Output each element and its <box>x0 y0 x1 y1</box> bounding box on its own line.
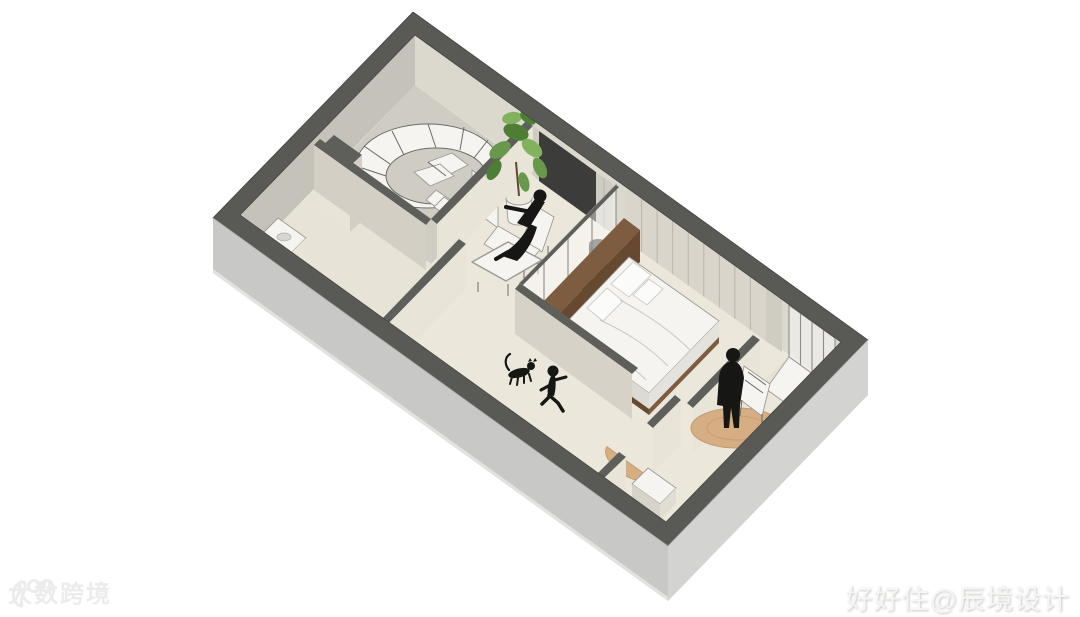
watermark-right-text: 好好住@辰境设计 <box>846 585 1070 615</box>
floorplan-rendering <box>0 0 1080 617</box>
screenshot-canvas: 大数跨境 好好住@辰境设计 <box>0 0 1080 617</box>
watermark-bottom-right: 好好住@辰境设计 <box>846 578 1070 617</box>
dashu-logo-icon <box>8 574 54 612</box>
watermark-bottom-left: 大数跨境 <box>8 574 112 609</box>
